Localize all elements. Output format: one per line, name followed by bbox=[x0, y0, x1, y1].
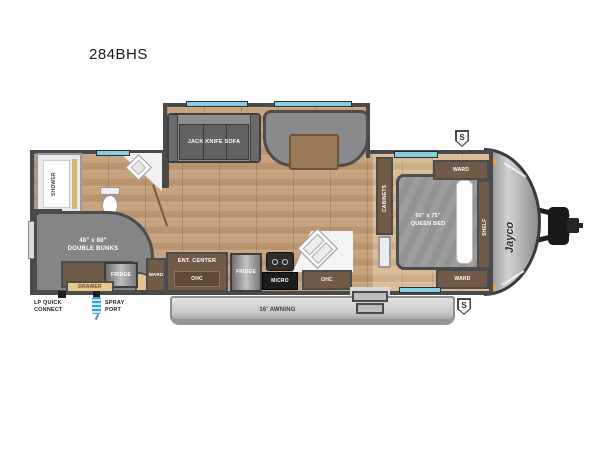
window-icon bbox=[96, 150, 130, 156]
ward-bottom-label: WARD bbox=[454, 276, 470, 282]
window-icon bbox=[399, 287, 441, 293]
living-wardrobe: WARD bbox=[146, 258, 166, 292]
sofa-armrest bbox=[250, 115, 259, 161]
cap-accent-stripe bbox=[501, 270, 524, 285]
cap-accent-stripe bbox=[503, 162, 526, 177]
bedroom-cabinets: CABINETS bbox=[376, 157, 393, 235]
entry-step bbox=[356, 303, 384, 314]
spray-port-hose-icon bbox=[92, 297, 101, 314]
window-icon bbox=[394, 151, 438, 158]
bedroom-shelf: SHELF bbox=[477, 180, 491, 269]
burner-icon bbox=[272, 259, 278, 265]
kitchen-fridge-label: FRIDGE bbox=[236, 269, 256, 275]
shower-label: SHOWER bbox=[51, 164, 57, 204]
stabilizer-badge-icon: S bbox=[457, 298, 471, 315]
stabilizer-badge-icon: S bbox=[455, 130, 469, 147]
bed-pillow bbox=[456, 180, 473, 264]
page-title: 284BHS bbox=[89, 46, 148, 63]
ward-top-label: WARD bbox=[453, 167, 469, 173]
shelf-label: SHELF bbox=[482, 210, 488, 244]
dinette-table bbox=[289, 134, 339, 170]
burner-icon bbox=[282, 259, 288, 265]
cooktop-icon bbox=[266, 252, 294, 271]
bunks-name-label: DOUBLE BUNKS bbox=[43, 246, 143, 254]
propane-tank-cover bbox=[548, 207, 569, 245]
under-bunk-drawer: DRAWER bbox=[66, 281, 114, 293]
jack-knife-sofa: JACK KNIFE SOFA bbox=[167, 113, 261, 163]
bunks-size-label: 48" x 80" bbox=[43, 238, 143, 246]
kitchen-ohc: OHC bbox=[302, 270, 352, 290]
hitch-ball-mount bbox=[578, 223, 583, 228]
bedroom-wardrobe-bottom: WARD bbox=[436, 269, 489, 289]
bedroom-wardrobe-top: WARD bbox=[433, 160, 489, 180]
ohc-left-label: OHC bbox=[191, 276, 203, 282]
window-icon bbox=[274, 101, 352, 107]
shower: SHOWER bbox=[36, 153, 82, 215]
sofa-seat: JACK KNIFE SOFA bbox=[179, 124, 249, 160]
ent-center-label: ENT. CENTER bbox=[168, 258, 226, 265]
sofa-label: JACK KNIFE SOFA bbox=[180, 139, 248, 146]
ent-center-ohc: OHC bbox=[174, 271, 220, 287]
window-icon bbox=[186, 101, 248, 107]
living-ward-label: WARD bbox=[149, 272, 164, 278]
bedroom-counter bbox=[378, 236, 391, 268]
ohc-right-label: OHC bbox=[321, 277, 333, 283]
bed-size-label: 60" x 75" bbox=[401, 213, 455, 220]
entertainment-center: ENT. CENTER OHC bbox=[166, 252, 228, 292]
sofa-armrest bbox=[169, 115, 178, 161]
spray-port-nozzle bbox=[95, 314, 99, 320]
micro-label: MICRO bbox=[271, 278, 289, 284]
bath-sink-basin bbox=[131, 160, 147, 176]
awning: 16' AWNING bbox=[170, 296, 455, 325]
microwave: MICRO bbox=[262, 272, 298, 290]
awning-label: 16' AWNING bbox=[172, 307, 383, 314]
toilet-tank-icon bbox=[100, 187, 120, 195]
bunk-fridge-label: FRIDGE bbox=[111, 272, 131, 278]
spray-port-label: SPRAY PORT bbox=[105, 300, 133, 313]
drawer-label: DRAWER bbox=[78, 284, 101, 290]
lp-quick-connect-label: LP QUICK CONNECT bbox=[34, 300, 76, 313]
lp-quick-connect-icon bbox=[58, 291, 66, 298]
jayco-logo: Jayco bbox=[504, 193, 516, 253]
bed-name-label: QUEEN BED bbox=[401, 221, 455, 228]
floorplan-canvas: 284BHS 16' AWNING Jayco SHOWER 48" x 8 bbox=[0, 0, 600, 450]
queen-bed: 60" x 75" QUEEN BED bbox=[396, 174, 480, 270]
shower-door bbox=[72, 159, 77, 209]
kitchen-fridge: FRIDGE bbox=[230, 253, 262, 292]
cabinets-label: CABINETS bbox=[382, 173, 388, 223]
entry-step bbox=[352, 291, 388, 302]
